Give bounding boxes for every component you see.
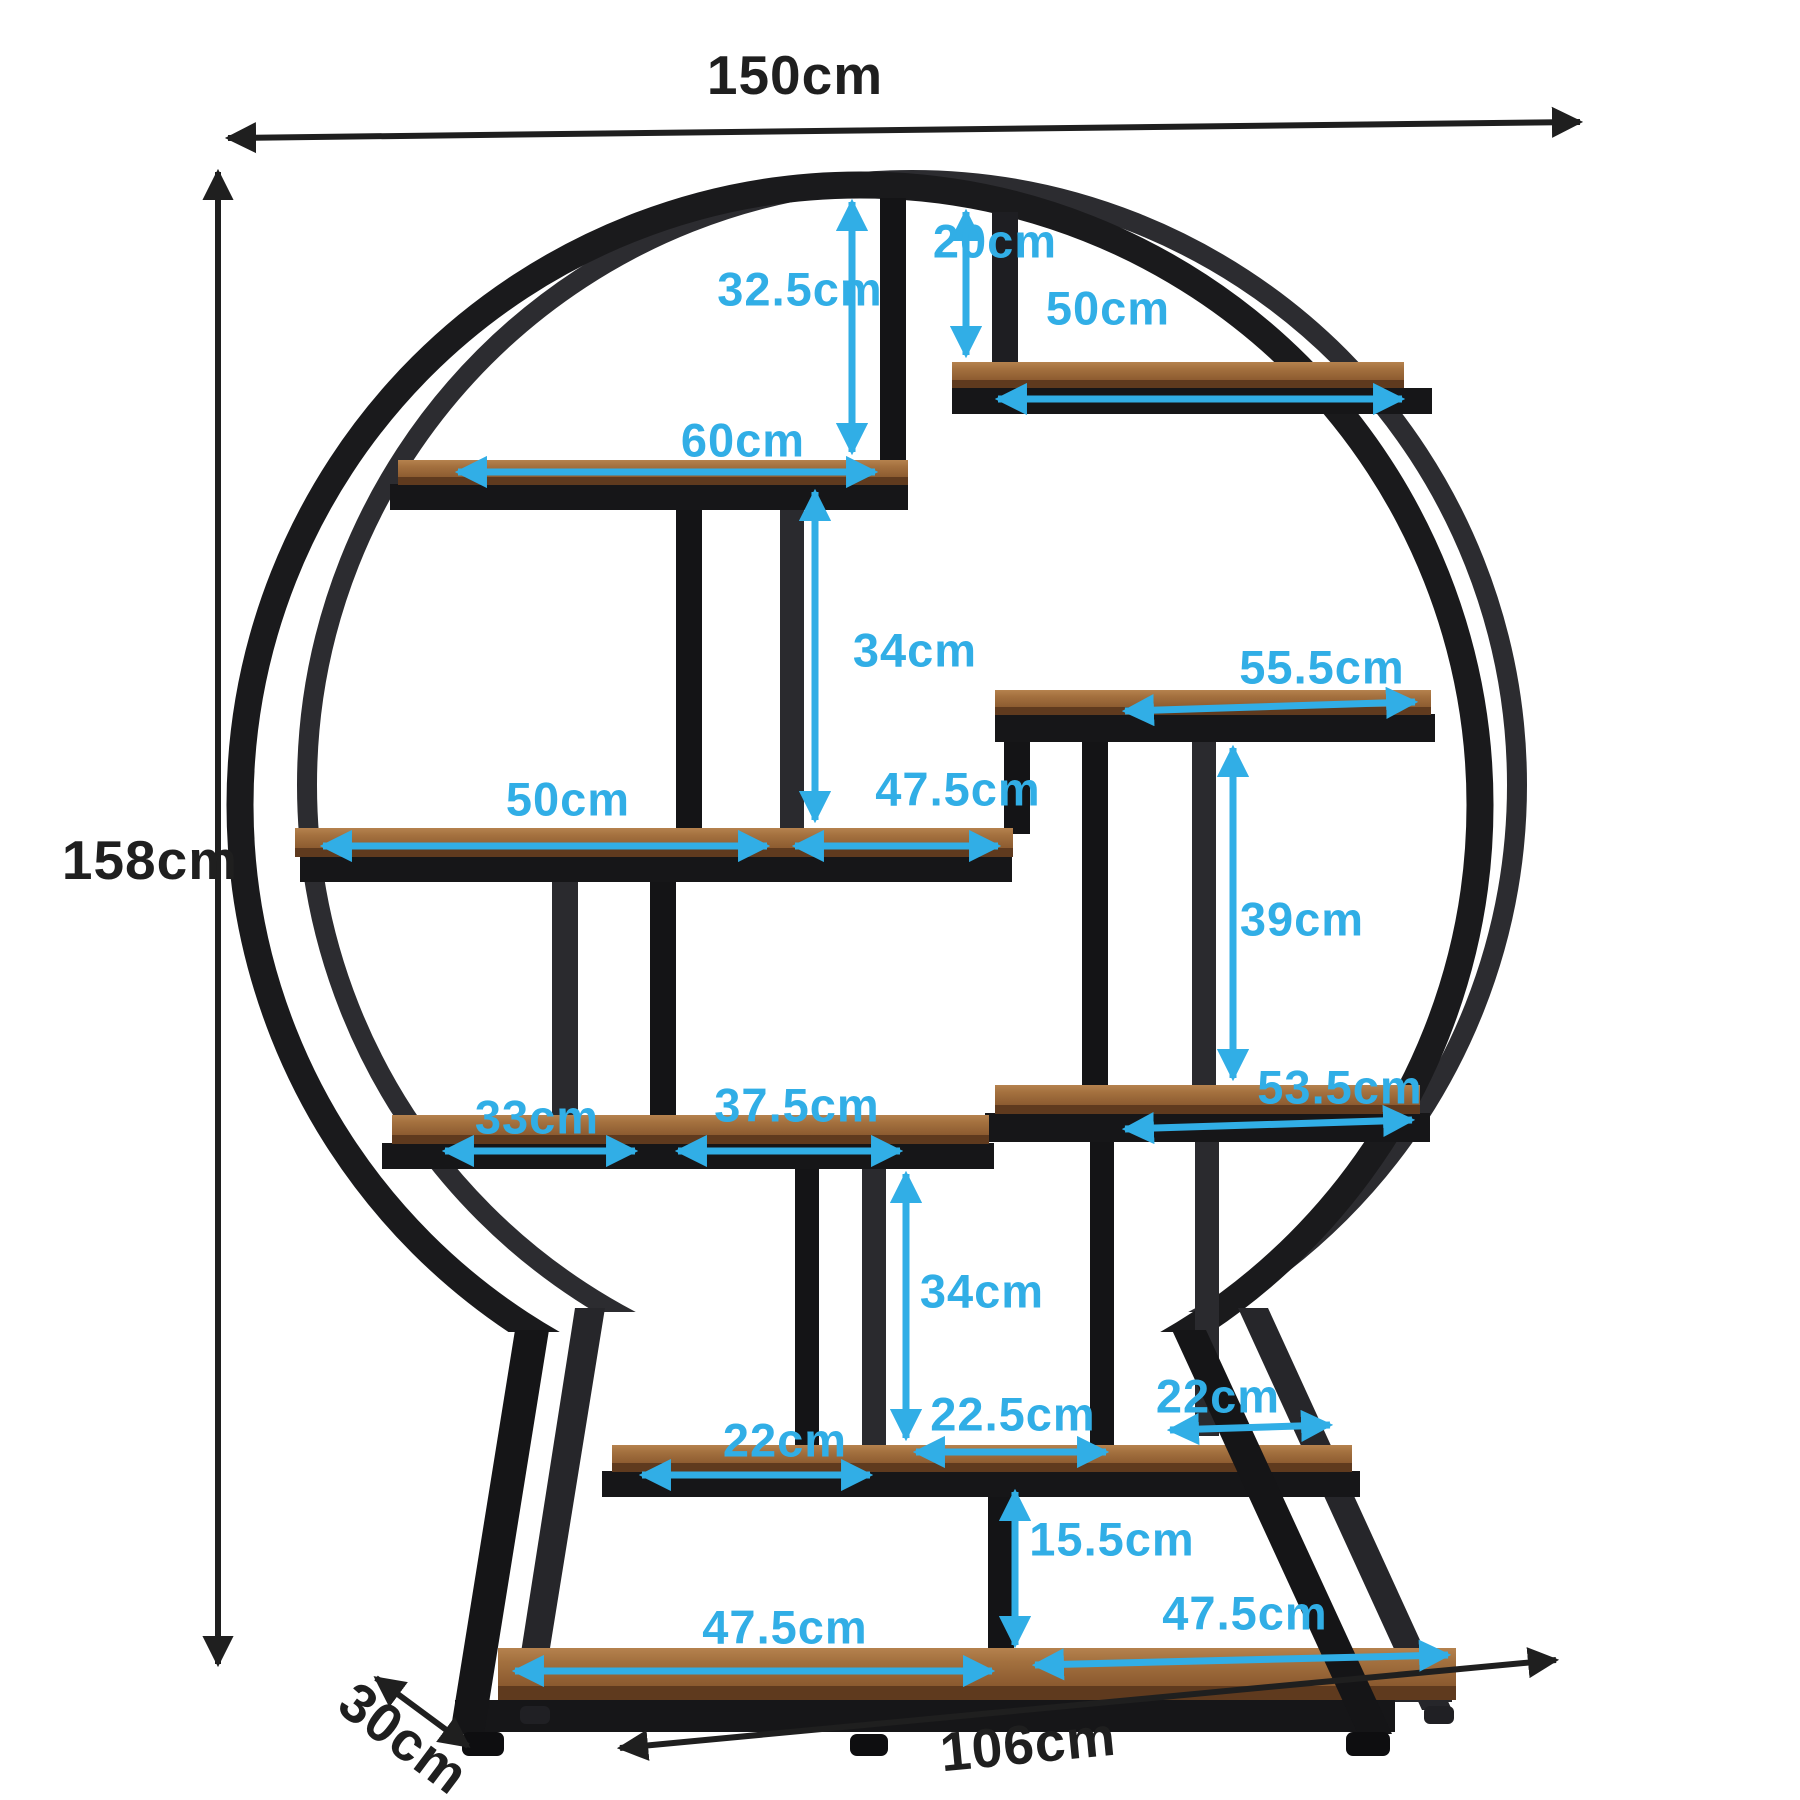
upper-mid-post-front [676, 505, 702, 835]
foot-back-right [1424, 1706, 1454, 1724]
dim-label-22cm-right: 22cm [1156, 1369, 1280, 1424]
top-divider-post-left [880, 198, 906, 466]
dim-label-37.5cm: 37.5cm [714, 1078, 879, 1133]
dim-label-total-height: 158cm [62, 828, 238, 892]
shelf6-to-shelf7-post-front [795, 1165, 819, 1450]
lower-divider-post-back [552, 878, 578, 1120]
dim-label-47.5cm-middle: 47.5cm [875, 762, 1040, 817]
dim-label-50cm-middle: 50cm [506, 772, 630, 827]
upper-mid-post-back [780, 492, 804, 834]
dimension-diagram: 150cm 158cm 106cm 30cm 32.5cm 20cm 50cm … [0, 0, 1800, 1800]
dim-label-32.5cm: 32.5cm [717, 262, 882, 317]
right-column-post-back [1192, 740, 1216, 1090]
lower-divider-post-front [650, 878, 676, 1152]
bottom-center-post [988, 1494, 1014, 1656]
rail-shelf-lower-left [382, 1143, 994, 1169]
foot-center [850, 1734, 888, 1756]
foot-right [1346, 1732, 1390, 1756]
dim-arrow-total-width [228, 122, 1580, 138]
dim-label-22.5cm: 22.5cm [930, 1387, 1095, 1442]
right-column-post-front [1082, 740, 1108, 1090]
dim-label-39cm: 39cm [1240, 892, 1364, 947]
rail-shelf-55cm [995, 714, 1435, 742]
dim-label-47.5cm-bottom-left: 47.5cm [702, 1600, 867, 1655]
dim-label-34cm-upper: 34cm [853, 623, 977, 678]
bookshelf-structure [0, 0, 1800, 1800]
dim-label-34cm-lower: 34cm [920, 1264, 1044, 1319]
shelf6-to-shelf7-post-back [862, 1142, 886, 1450]
shelf-top-right-50cm [952, 362, 1404, 388]
dim-label-22cm-left: 22cm [723, 1413, 847, 1468]
dim-label-total-width: 150cm [707, 43, 883, 107]
base-bottom-rail [455, 1700, 1395, 1732]
foot-back-left [520, 1706, 550, 1724]
rail-shelf-60cm [390, 484, 908, 510]
dim-label-55.5cm: 55.5cm [1239, 640, 1404, 695]
dim-arrow-22cm-right [1170, 1425, 1330, 1430]
dim-label-33cm: 33cm [475, 1090, 599, 1145]
dim-label-50cm-top: 50cm [1046, 281, 1170, 336]
posts [552, 198, 1219, 1656]
dim-label-60cm: 60cm [681, 413, 805, 468]
dim-label-20cm: 20cm [933, 214, 1057, 269]
dim-label-47.5cm-bottom-right: 47.5cm [1162, 1586, 1327, 1641]
dim-label-15.5cm: 15.5cm [1029, 1512, 1194, 1567]
dim-label-53.5cm: 53.5cm [1257, 1060, 1422, 1115]
rail-shelf-middle [300, 856, 1012, 882]
